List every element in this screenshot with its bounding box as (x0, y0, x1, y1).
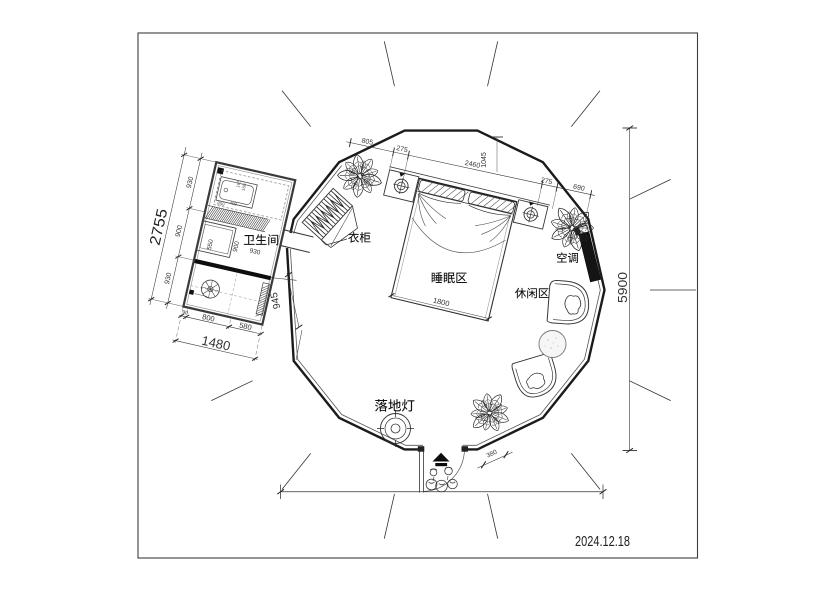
svg-text:2024.12.18: 2024.12.18 (575, 533, 630, 550)
svg-text:5900: 5900 (616, 272, 630, 303)
svg-text:1045: 1045 (481, 152, 488, 168)
